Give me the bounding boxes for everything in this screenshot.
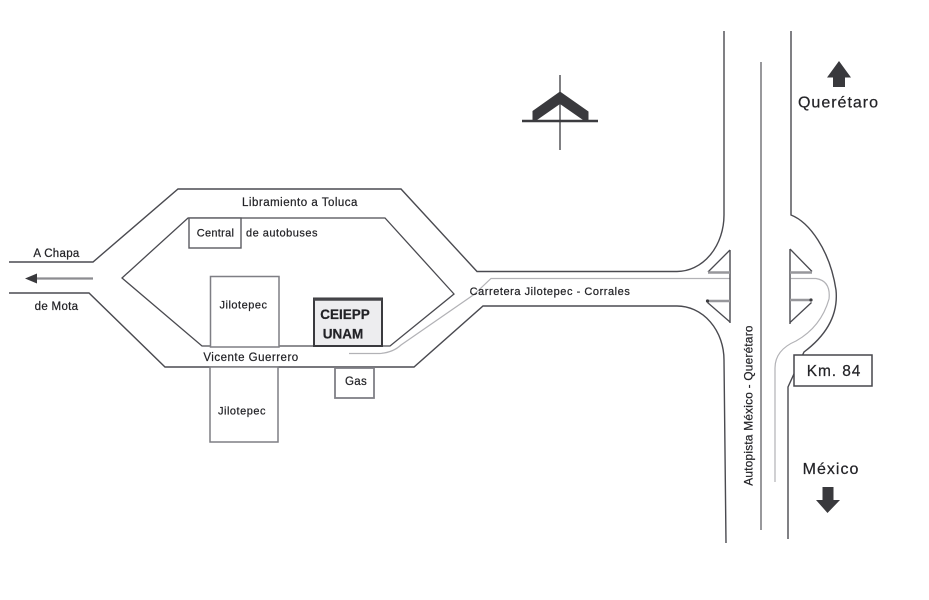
svg-text:Autopista México - Querétaro: Autopista México - Querétaro <box>742 325 756 486</box>
svg-text:de autobuses: de autobuses <box>246 228 318 240</box>
svg-text:Vicente Guerrero: Vicente Guerrero <box>203 352 298 364</box>
svg-text:Km. 84: Km. 84 <box>807 363 862 380</box>
svg-text:A Chapa: A Chapa <box>33 248 80 260</box>
svg-text:Gas: Gas <box>345 376 367 388</box>
svg-text:Jilotepec: Jilotepec <box>218 406 266 418</box>
svg-text:UNAM: UNAM <box>323 327 364 342</box>
svg-text:Libramiento a Toluca: Libramiento a Toluca <box>242 197 358 209</box>
svg-text:Central: Central <box>197 228 235 240</box>
svg-text:Querétaro: Querétaro <box>798 95 879 112</box>
svg-text:de Mota: de Mota <box>35 301 79 313</box>
svg-text:CEIEPP: CEIEPP <box>320 307 370 322</box>
svg-text:México: México <box>803 461 860 478</box>
svg-text:Jilotepec: Jilotepec <box>220 300 268 312</box>
svg-text:Carretera Jilotepec - Corrales: Carretera Jilotepec - Corrales <box>470 286 631 298</box>
